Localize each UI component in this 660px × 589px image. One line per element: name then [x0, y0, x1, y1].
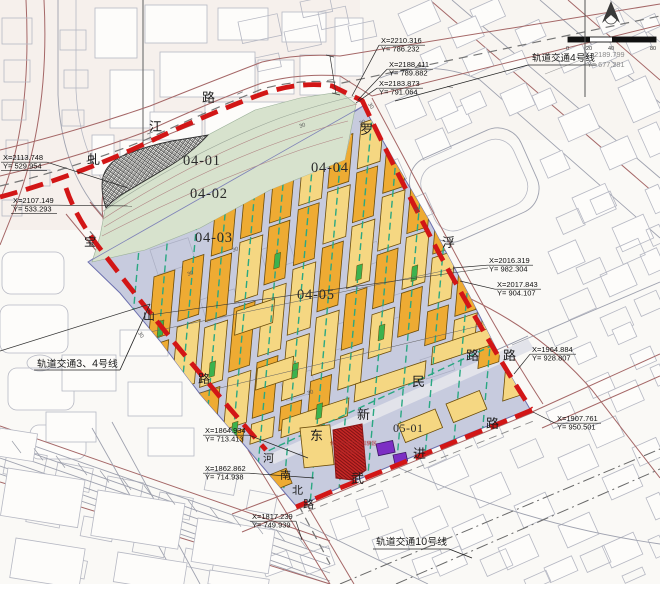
svg-text:04-02: 04-02	[190, 186, 228, 202]
svg-text:04-03: 04-03	[195, 230, 233, 246]
svg-text:Y= 786.232: Y= 786.232	[381, 45, 420, 54]
svg-text:20: 20	[586, 46, 592, 52]
svg-text:1: 1	[415, 536, 421, 548]
svg-text:Y= 791.064: Y= 791.064	[379, 88, 418, 97]
svg-text:80: 80	[650, 46, 656, 52]
svg-text:04-01: 04-01	[183, 153, 221, 169]
svg-text:40: 40	[608, 46, 614, 52]
svg-text:Y= 950.501: Y= 950.501	[557, 423, 596, 432]
svg-text:Y= 714.938: Y= 714.938	[205, 473, 244, 482]
svg-text:0: 0	[566, 46, 569, 52]
svg-text:Y= 533.293: Y= 533.293	[13, 205, 52, 214]
svg-text:3: 3	[76, 358, 82, 370]
svg-text:0: 0	[421, 536, 427, 548]
svg-text:Y= 928.807: Y= 928.807	[532, 354, 571, 363]
svg-text:4: 4	[570, 53, 576, 64]
svg-text:05-01: 05-01	[393, 421, 424, 435]
svg-text:Y= 749.939: Y= 749.939	[252, 521, 291, 530]
svg-text:Y= 713.413: Y= 713.413	[205, 435, 244, 444]
svg-text:04-05: 04-05	[297, 287, 335, 303]
svg-text:4: 4	[92, 358, 98, 370]
svg-text:Y= 904.107: Y= 904.107	[497, 289, 536, 298]
svg-text:04-04: 04-04	[311, 160, 349, 176]
svg-text:Y= 789.882: Y= 789.882	[389, 69, 428, 78]
svg-text:Y= 529.954: Y= 529.954	[3, 162, 42, 171]
svg-text:Y= 982.304: Y= 982.304	[489, 265, 528, 274]
